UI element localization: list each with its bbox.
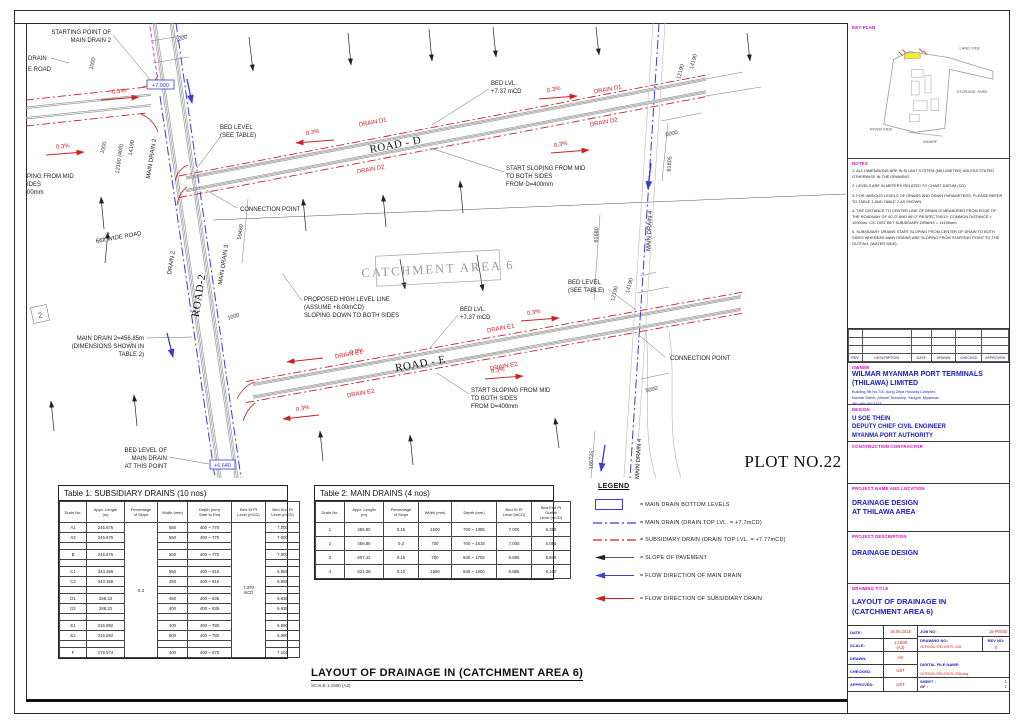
date-label: DATE: xyxy=(848,626,884,638)
approved-value: UST xyxy=(884,682,917,687)
column-header: Appx. Length (m) xyxy=(87,502,125,523)
dimension-labels: 1000 1000 1000 1000 12190 (40ft) 14190 5… xyxy=(89,34,699,469)
bed-lvl-label: BED LVL. xyxy=(491,81,517,87)
table1-cell xyxy=(266,560,300,567)
main-drain2-dim-label: MAIN DRAIN 2=456.85m xyxy=(77,336,144,342)
table1-cell: 288.33 xyxy=(87,594,125,604)
table1-cell xyxy=(158,543,188,550)
bed-level-main-label: AT THIS POINT xyxy=(125,464,168,470)
job-no-label: JOB NO: xyxy=(920,629,937,634)
revision-empty-row xyxy=(849,346,1009,354)
notes-section: NOTES 1. ALL DIMENSIONS ARE IN SI UNIT S… xyxy=(848,159,1009,329)
start-sloping-label: START SLOPING FROM MID xyxy=(506,166,586,172)
column-header: Bed End Pt Level (mCD) xyxy=(266,502,300,523)
main-drain-3-label: MAIN DRAIN 3 xyxy=(218,244,230,285)
table2-cell: 0.15 xyxy=(384,551,419,565)
column-header: Appx. Length (m) xyxy=(345,502,384,523)
table1-cell: 400 ~ 835 xyxy=(188,604,232,614)
table1-cell xyxy=(87,614,125,621)
slope-label: 0.3% xyxy=(296,405,311,413)
table1-cell: 6.935 xyxy=(266,594,300,604)
table1-cell: D1 xyxy=(60,594,87,604)
dim-12190-40ft: 12190 (40ft) xyxy=(115,144,125,174)
key-plan-map: LAND SIDE STORAGE YARD RIVER SIDE WHARF xyxy=(852,30,1004,150)
column-header: DESCRIPTION xyxy=(862,354,911,362)
drain-d1-label: DRAIN D1 xyxy=(358,117,387,128)
title-block-panel: KEY PLAN LAND SIDE STORAGE YARD RIVER SI… xyxy=(847,23,1009,713)
bed-level-table-label: (SEE TABLE) xyxy=(568,288,604,294)
drain-d1-d2-lines xyxy=(179,75,709,198)
revision-section: REV.DESCRIPTIONDATEDRAWNCHECKEDAPPROVED xyxy=(848,329,1009,363)
bed-level-table-label: BED LEVEL xyxy=(220,125,253,131)
table1-cell xyxy=(158,587,188,594)
table1-cell xyxy=(60,560,87,567)
table2-cell: 7.000 xyxy=(497,537,532,551)
scale-row: SCALE: 1:1500 (A3) xyxy=(848,639,917,652)
table1-cell xyxy=(60,614,87,621)
table2-cell: 0.15 xyxy=(384,523,419,537)
dim-14190: 14190 xyxy=(689,54,699,70)
sloping-cut-label: PING FROM MID xyxy=(27,174,74,180)
table2-row: 4631.380.121500845 ~ 16006.8556.100 xyxy=(316,565,571,579)
table1-cell xyxy=(87,543,125,550)
info-right-column: JOB NO: 15-P0030 DRAWING NO: 15-P0030-YR… xyxy=(918,626,1009,691)
dim-1000: 1000 xyxy=(175,34,188,43)
table1-cell xyxy=(266,614,300,621)
main-drain-2-label: MAIN DRAIN 2 xyxy=(146,138,158,179)
drawing-title-label: DRAWING TITLE xyxy=(852,586,1005,591)
drawing-title-line: LAYOUT OF DRAINAGE IN xyxy=(852,597,1005,607)
column-header: APPROVED xyxy=(982,354,1009,362)
table1-cell: 550 xyxy=(158,567,188,577)
slope-label: 0.3% xyxy=(112,88,127,95)
table2-cell: 0.2 xyxy=(384,537,419,551)
main-drain-4-label: MAIN DRAIN 4 xyxy=(635,438,643,479)
table1-cell: 400 ~ 770 xyxy=(188,533,232,543)
flow-subsidiary-drain-arrow-icon xyxy=(592,594,640,603)
legend-title: LEGEND xyxy=(598,483,854,490)
bottom-thick-line xyxy=(26,699,847,702)
column-header: Drain No. xyxy=(316,502,345,523)
table2-cell: 6.085 xyxy=(532,537,571,551)
dim-61605: 61605 xyxy=(666,156,673,172)
table1-cell xyxy=(188,641,232,648)
bed-lvl-label: +7.37 mCD xyxy=(491,89,522,95)
catchment-area-box: CATCHMENT AREA 6 xyxy=(361,249,516,287)
legend-item-text: = SLOPE OF PAVEMENT xyxy=(640,555,707,561)
road-d-label: ROAD - D xyxy=(369,134,423,156)
slope-label: 0.3% xyxy=(554,141,569,150)
table2-main-drains: Table 2: MAIN DRAINS (4 nos) Drain No.Ap… xyxy=(314,485,554,580)
subsidiary-drain-line-icon xyxy=(592,536,640,544)
drawing-no-cell: DRAWING NO: 15-P0030-YRD-DR-PL-038 xyxy=(918,637,983,651)
grid-marker: 2 xyxy=(31,305,50,324)
note-item: 2. LEVELS ARE IN METERS RELATED TO CHART… xyxy=(852,183,1005,189)
table1-cell: 400 ~ 915 xyxy=(188,577,232,587)
bed-lvl-label: BED LVL. xyxy=(460,307,486,313)
table1-cell xyxy=(158,614,188,621)
table1-cell: 400 ~ 770 xyxy=(188,523,232,533)
table2-cell: 845 ~ 1600 xyxy=(452,565,497,579)
table2-cell: 4 xyxy=(316,565,345,579)
caption-scale: SCALE 1:1500 (A3) xyxy=(311,683,583,688)
dim-61680: 61680 xyxy=(594,227,601,242)
table2-cell: 7.000 xyxy=(497,523,532,537)
wharf-label: WHARF xyxy=(923,139,938,144)
panel-spacer xyxy=(848,692,1009,713)
column-header: Drain No. xyxy=(60,502,87,523)
river-side-label: RIVER SIDE xyxy=(870,126,893,131)
table1-cell: 400 ~ 780 xyxy=(188,621,232,631)
table1-cell: E2 xyxy=(60,631,87,641)
table1-cell: D2 xyxy=(60,604,87,614)
dim-14190: 14190 xyxy=(625,278,635,294)
table1-cell: 400 ~ 915 xyxy=(188,567,232,577)
owner-name: WILMAR MYANMAR PORT TERMINALS xyxy=(852,370,1005,379)
dim-1000: 1000 xyxy=(89,57,98,70)
table2-cell: 6.100 xyxy=(532,565,571,579)
note-item: 1. ALL DIMENSIONS ARE IN SI UNIT SYSTEM … xyxy=(852,168,1005,179)
drawn-label: DRAWN: xyxy=(848,652,884,664)
drain-cut-label: DRAIN xyxy=(28,56,47,62)
slope-label: 0.3% xyxy=(547,86,562,95)
table1-cell xyxy=(158,560,188,567)
table2-row: 2456.850.2700700 ~ 16157.0006.085 xyxy=(316,537,571,551)
table1-cell: 215.892 xyxy=(87,631,125,641)
table1-cell: 7.370 mCD xyxy=(232,523,266,658)
table2-cell: 2 xyxy=(316,537,345,551)
table1-cell: 450 xyxy=(158,594,188,604)
drawn-value: AG xyxy=(884,655,917,660)
drawing-sheet: 0.3% 0.3% 0.3% 0.3% 0.3% 0.3% 0.3% 0.3% … xyxy=(14,10,1010,714)
legend-item: = FLOW DIRECTION OF SUBSIDIARY DRAIN xyxy=(592,594,854,603)
table1-cell xyxy=(188,560,232,567)
proposed-line-label: SLOPING DOWN TO BOTH SIDES xyxy=(304,313,399,319)
column-header: Bed End Pt Outfall Level (mCD) xyxy=(532,502,571,523)
road-cut-label: E ROAD xyxy=(28,67,52,73)
legend-item-text: = SUBSIDIARY DRAIN (DRAIN TOP LVL. = +7.… xyxy=(640,537,786,543)
caption-title: LAYOUT OF DRAINAGE IN (CATCHMENT AREA 6) xyxy=(311,667,583,681)
legend-item: = SLOPE OF PAVEMENT xyxy=(592,553,854,562)
table1-cell xyxy=(266,543,300,550)
column-header: Width (mm) xyxy=(158,502,188,523)
column-header: REV. xyxy=(849,354,863,362)
column-header: Depth (mm) xyxy=(452,502,497,523)
table1-cell xyxy=(266,641,300,648)
level-7000: +7.000 xyxy=(147,80,174,89)
creek-lines xyxy=(646,331,681,478)
revision-empty-row xyxy=(849,330,1009,338)
table2-cell: 607.42 xyxy=(345,551,384,565)
table1-cell: 400 xyxy=(158,621,188,631)
table2-cell: 6.855 xyxy=(497,551,532,565)
job-no-row: JOB NO: 15-P0030 xyxy=(918,626,1009,637)
table1-cell: 7.102 xyxy=(266,648,300,658)
checked-label: CHECKED: xyxy=(848,665,884,677)
table1-cell: 400 xyxy=(158,604,188,614)
table1-cell xyxy=(188,614,232,621)
table2-cell: 6.315 xyxy=(532,523,571,537)
table2-cell: 700 xyxy=(419,537,452,551)
column-header: CHECKED xyxy=(956,354,982,362)
table1-cell: 400 ~ 835 xyxy=(188,594,232,604)
table1-cell: 400 ~ 770 xyxy=(188,550,232,560)
table1-cell: A1 xyxy=(60,523,87,533)
table2-header-row: Drain No.Appx. Length (m)Percentage of S… xyxy=(316,502,571,523)
table1-cell: 7.000 xyxy=(266,550,300,560)
sheet-of-value: 1 xyxy=(1005,684,1007,689)
table2-cell: 0.12 xyxy=(384,565,419,579)
drawing-caption: LAYOUT OF DRAINAGE IN (CATCHMENT AREA 6)… xyxy=(311,663,583,688)
drawn-row: DRAWN: AG xyxy=(848,652,917,665)
table1-cell: A2 xyxy=(60,533,87,543)
drawing-no-row: DRAWING NO: 15-P0030-YRD-DR-PL-038 REV N… xyxy=(918,637,1009,652)
bed-level-main-label: BED LEVEL OF xyxy=(125,448,168,454)
note-item: 4. THE DISTANCE TO CENTER LINE OF DRAIN … xyxy=(852,208,1005,225)
table1-cell xyxy=(188,587,232,594)
table2-cell: 1 xyxy=(316,523,345,537)
level-6640-text: +6.640 xyxy=(214,463,231,469)
legend-item: = FLOW DIRECTION OF MAIN DRAIN xyxy=(592,571,854,580)
legend-item-text: = FLOW DIRECTION OF MAIN DRAIN xyxy=(640,573,742,579)
drain-2-label: DRAIN 2 xyxy=(167,250,177,275)
rev-no-value: 0 xyxy=(983,645,1009,650)
bed-level-table-label: (SEE TABLE) xyxy=(220,133,256,139)
slope-percent-labels: 0.3% 0.3% 0.3% 0.3% 0.3% 0.3% 0.3% 0.3% … xyxy=(56,86,569,414)
table1-cell xyxy=(87,641,125,648)
approved-label: APPROVED: xyxy=(848,678,884,691)
contractor-section: CONSTRUCTION CONTRACTOR xyxy=(848,442,1009,484)
key-plan-section: KEY PLAN LAND SIDE STORAGE YARD RIVER SI… xyxy=(848,23,1009,159)
table1-cell: 6.990 xyxy=(266,631,300,641)
column-header: DATE xyxy=(911,354,931,362)
table1-cell: 6.935 xyxy=(266,604,300,614)
start-sloping-label: TO BOTH SIDES xyxy=(506,174,552,180)
table1-cell: 245.675 xyxy=(87,523,125,533)
connection-point-label: CONNECTION POINT xyxy=(670,356,731,362)
slope-label: 0.3% xyxy=(56,143,71,150)
table1-cell: 550 xyxy=(158,533,188,543)
drawing-title-line: (CATCHMENT AREA 6) xyxy=(852,607,1005,617)
main-drain-4-label: MAIN DRAIN 4 xyxy=(646,210,654,251)
table1-cell: 178.574 xyxy=(87,648,125,658)
owner-section: OWNER WILMAR MYANMAR PORT TERMINALS (THI… xyxy=(848,363,1009,405)
table1-cell: 7.000 xyxy=(266,523,300,533)
table1-cell: 7.000 xyxy=(266,533,300,543)
revision-header-row: REV.DESCRIPTIONDATEDRAWNCHECKEDAPPROVED xyxy=(849,354,1009,362)
design-line: MYANMA PORT AUTHORITY xyxy=(852,432,1005,440)
table1-cell: 6.990 xyxy=(266,621,300,631)
dim-12190: 12190 xyxy=(610,286,620,302)
table2-cell: 1500 xyxy=(419,523,452,537)
design-label: DESIGN xyxy=(852,407,1005,412)
catchment-area-label: CATCHMENT AREA 6 xyxy=(361,258,515,280)
proposed-line-label: PROPOSED HIGH LEVEL LINE xyxy=(304,297,390,303)
table1-header-row: Drain No.Appx. Length (m)Percentage of S… xyxy=(60,502,300,523)
project-name-line: DRAINAGE DESIGN xyxy=(852,499,1005,508)
checked-row: CHECKED: UST xyxy=(848,665,917,678)
sloping-cut-label: IDES xyxy=(27,182,41,188)
table2-cell: 700 ~ 1615 xyxy=(452,537,497,551)
table1-cell xyxy=(266,587,300,594)
storage-yard-label: STORAGE YARD xyxy=(957,89,988,94)
table1-cell: 6.855 xyxy=(266,567,300,577)
owner-address: Kannar Street, Ahlone Township, Yangon, … xyxy=(852,396,1005,401)
dim-59460: 59460 xyxy=(237,224,245,240)
scale-value: 1:1500 (A3) xyxy=(884,640,917,650)
start-sloping-label: FROM D=400mm xyxy=(471,404,518,410)
dim-14190: 14190 xyxy=(128,140,136,156)
table1-cell: 550 xyxy=(158,523,188,533)
table1-cell: 343.366 xyxy=(87,577,125,587)
checked-value: UST xyxy=(884,668,917,673)
table1-cell: 400 ~ 780 xyxy=(188,631,232,641)
drain-d2-label: DRAIN D2 xyxy=(589,117,618,128)
level-7000-text: +7.000 xyxy=(152,83,169,89)
catchment-boundary-line xyxy=(213,194,846,220)
table2-cell: 6.855 xyxy=(497,565,532,579)
table2-cell: 631.38 xyxy=(345,565,384,579)
table2-title: Table 2: MAIN DRAINS (4 nos) xyxy=(315,486,553,501)
start-sloping-label: TO BOTH SIDES xyxy=(471,396,517,402)
proposed-line-label: (ASSUME +8.00mCD) xyxy=(304,305,364,311)
bed-level-table-label: BED LEVEL xyxy=(568,280,601,286)
table1-cell xyxy=(60,543,87,550)
bed-level-main-label: MAIN DRAIN xyxy=(132,456,167,462)
table1-cell: 245.675 xyxy=(87,550,125,560)
design-line: U SOE THEIN xyxy=(852,415,1005,423)
file-name-row: DIGITAL FILE NAME: 15-P0030-YRD-DR-PL-03… xyxy=(918,652,1009,678)
flow-main-drain-arrow-icon xyxy=(592,571,640,580)
subsidiary-drain-labels: DRAIN D1 DRAIN D1 DRAIN D2 DRAIN D2 DRAI… xyxy=(335,84,623,399)
design-line: DEPUTY CHIEF CIVIL ENGINEER xyxy=(852,423,1005,431)
table1-cell xyxy=(60,641,87,648)
plan-drawing: 0.3% 0.3% 0.3% 0.3% 0.3% 0.3% 0.3% 0.3% … xyxy=(26,23,846,478)
column-header: Depth (mm) Start to End xyxy=(188,502,232,523)
table1-cell: 343.366 xyxy=(87,567,125,577)
column-header: DRAWN xyxy=(931,354,955,362)
start-sloping-label: FROM D=400mm xyxy=(506,182,553,188)
table1-cell xyxy=(60,587,87,594)
table1-cell xyxy=(158,641,188,648)
main-drain2-dim-label: (DIMENSIONS SHOWN IN xyxy=(72,344,144,350)
table1-cell: 245.675 xyxy=(87,533,125,543)
design-section: DESIGN U SOE THEIN DEPUTY CHIEF CIVIL EN… xyxy=(848,405,1009,442)
wharf-line xyxy=(908,132,942,136)
legend-item-text: = MAIN DRAIN BOTTOM LEVELS xyxy=(640,502,730,508)
dim-12190: 12190 xyxy=(676,64,686,80)
table1-cell: 215.892 xyxy=(87,621,125,631)
date-row: DATE: 16.06.2015 xyxy=(848,626,917,639)
owner-address: Building 9B No.7/A, Aung Zeya Housing Co… xyxy=(852,390,1005,395)
plot-number: PLOT NO.22 xyxy=(744,452,841,471)
slope-of-pavement-arrow-icon xyxy=(592,553,640,562)
start-sloping-label: START SLOPING FROM MID xyxy=(471,388,551,394)
rev-no-label: REV NO: xyxy=(983,638,1009,643)
starting-point-label: MAIN DRAIN 2 xyxy=(71,38,112,44)
table2-cell: 3 xyxy=(316,551,345,565)
table1-cell: 288.33 xyxy=(87,604,125,614)
project-description-label: PROJECT DESCRIPTION xyxy=(852,534,1005,539)
sheet-of-label: OF : xyxy=(920,684,928,689)
grid-marker-label: 2 xyxy=(37,310,44,320)
main-drain2-dim-label: TABLE 2) xyxy=(118,352,144,358)
table1-cell: 400 xyxy=(158,648,188,658)
note-item: 3. FOR VARIOUS LEVELS OF DRAINS AND DRAI… xyxy=(852,193,1005,204)
file-name-value: 15-P0030-YRD-DR-PL-038.dwg xyxy=(920,672,1007,676)
table2-row: 3607.420.15700845 ~ 17556.8555.945 xyxy=(316,551,571,565)
note-item: 5. SUBSIDIARY DRAINS START SLOPING FROM … xyxy=(852,229,1005,246)
main-drain-line-icon xyxy=(592,519,640,527)
table1-cell: B xyxy=(60,550,87,560)
project-name-line: AT THILAWA AREA xyxy=(852,508,1005,517)
slope-label: 0.3% xyxy=(527,309,542,317)
job-no-value: 15-P0030 xyxy=(989,629,1007,634)
table2-row: 1456.800.151500700 ~ 13857.0006.315 xyxy=(316,523,571,537)
road-d-lines xyxy=(186,78,706,192)
drain-e1-label: DRAIN E1 xyxy=(487,323,516,334)
table2-cell: 456.80 xyxy=(345,523,384,537)
dim-166725: 166725 xyxy=(589,451,596,470)
info-left-column: DATE: 16.06.2015 SCALE: 1:1500 (A3) DRAW… xyxy=(848,626,918,691)
plot-location-highlight xyxy=(904,52,920,59)
main-drain-bottom-level-icon xyxy=(592,499,640,510)
project-name-label: PROJECT NAME AND LOCATION xyxy=(852,486,1005,491)
approved-row: APPROVED: UST xyxy=(848,678,917,691)
wide-road-label: 66ft WIDE ROAD xyxy=(95,231,142,245)
table1-cell: 400 ~ 670 xyxy=(188,648,232,658)
legend-item: = SUBSIDIARY DRAIN (DRAIN TOP LVL. = +7.… xyxy=(592,536,854,544)
notes-label: NOTES xyxy=(852,161,1005,166)
date-value: 16.06.2015 xyxy=(884,629,917,634)
table1-cell xyxy=(87,587,125,594)
column-header: Width (mm) xyxy=(419,502,452,523)
table1-subsidiary-drains: Table 1: SUBSIDIARY DRAINS (10 nos) Drai… xyxy=(58,485,288,659)
table1-title: Table 1: SUBSIDIARY DRAINS (10 nos) xyxy=(59,486,287,501)
info-grid-section: DATE: 16.06.2015 SCALE: 1:1500 (A3) DRAW… xyxy=(848,626,1009,692)
project-description-line: DRAINAGE DESIGN xyxy=(852,549,1005,558)
table1-cell: C1 xyxy=(60,567,87,577)
leader-lines xyxy=(51,35,665,464)
slope-label: 0.3% xyxy=(306,129,321,138)
column-header: Percentage of Slope xyxy=(384,502,419,523)
level-6640: +6.640 xyxy=(210,460,235,469)
starting-point-label: STARTING POINT OF xyxy=(51,30,111,36)
legend-item: = MAIN DRAIN (DRAIN TOP LVL. = +7.7mCD) xyxy=(592,519,854,527)
table1-cell xyxy=(188,543,232,550)
drain-d2-label: DRAIN D2 xyxy=(356,164,385,175)
sheet-row: SHEET : 1 OF : 1 xyxy=(918,678,1009,690)
column-header: Bed St Pt Level (mCD) xyxy=(232,502,266,523)
drawing-no-label: DRAWING NO: xyxy=(920,638,980,643)
drain-e1-label: DRAIN E1 xyxy=(335,349,364,360)
legend-item-text: = MAIN DRAIN (DRAIN TOP LVL. = +7.7mCD) xyxy=(640,520,762,526)
table2-cell: 1500 xyxy=(419,565,452,579)
table2-cell: 845 ~ 1755 xyxy=(452,551,497,565)
table2-cell: 456.85 xyxy=(345,537,384,551)
column-header: Bed St Pt Level (mCD) xyxy=(497,502,532,523)
table1-cell: F xyxy=(60,648,87,658)
table1-cell: 450 xyxy=(158,577,188,587)
table1-cell: 550 xyxy=(158,550,188,560)
column-header: Percentage of Slope xyxy=(125,502,158,523)
dim-1000: 1000 xyxy=(100,141,109,154)
project-description-section: PROJECT DESCRIPTION DRAINAGE DESIGN xyxy=(848,532,1009,584)
legend-item-text: = FLOW DIRECTION OF SUBSIDIARY DRAIN xyxy=(640,596,762,602)
land-side-label: LAND SIDE xyxy=(959,46,980,51)
table2-cell: 5.945 xyxy=(532,551,571,565)
sloping-cut-label: 00mm xyxy=(27,190,44,196)
